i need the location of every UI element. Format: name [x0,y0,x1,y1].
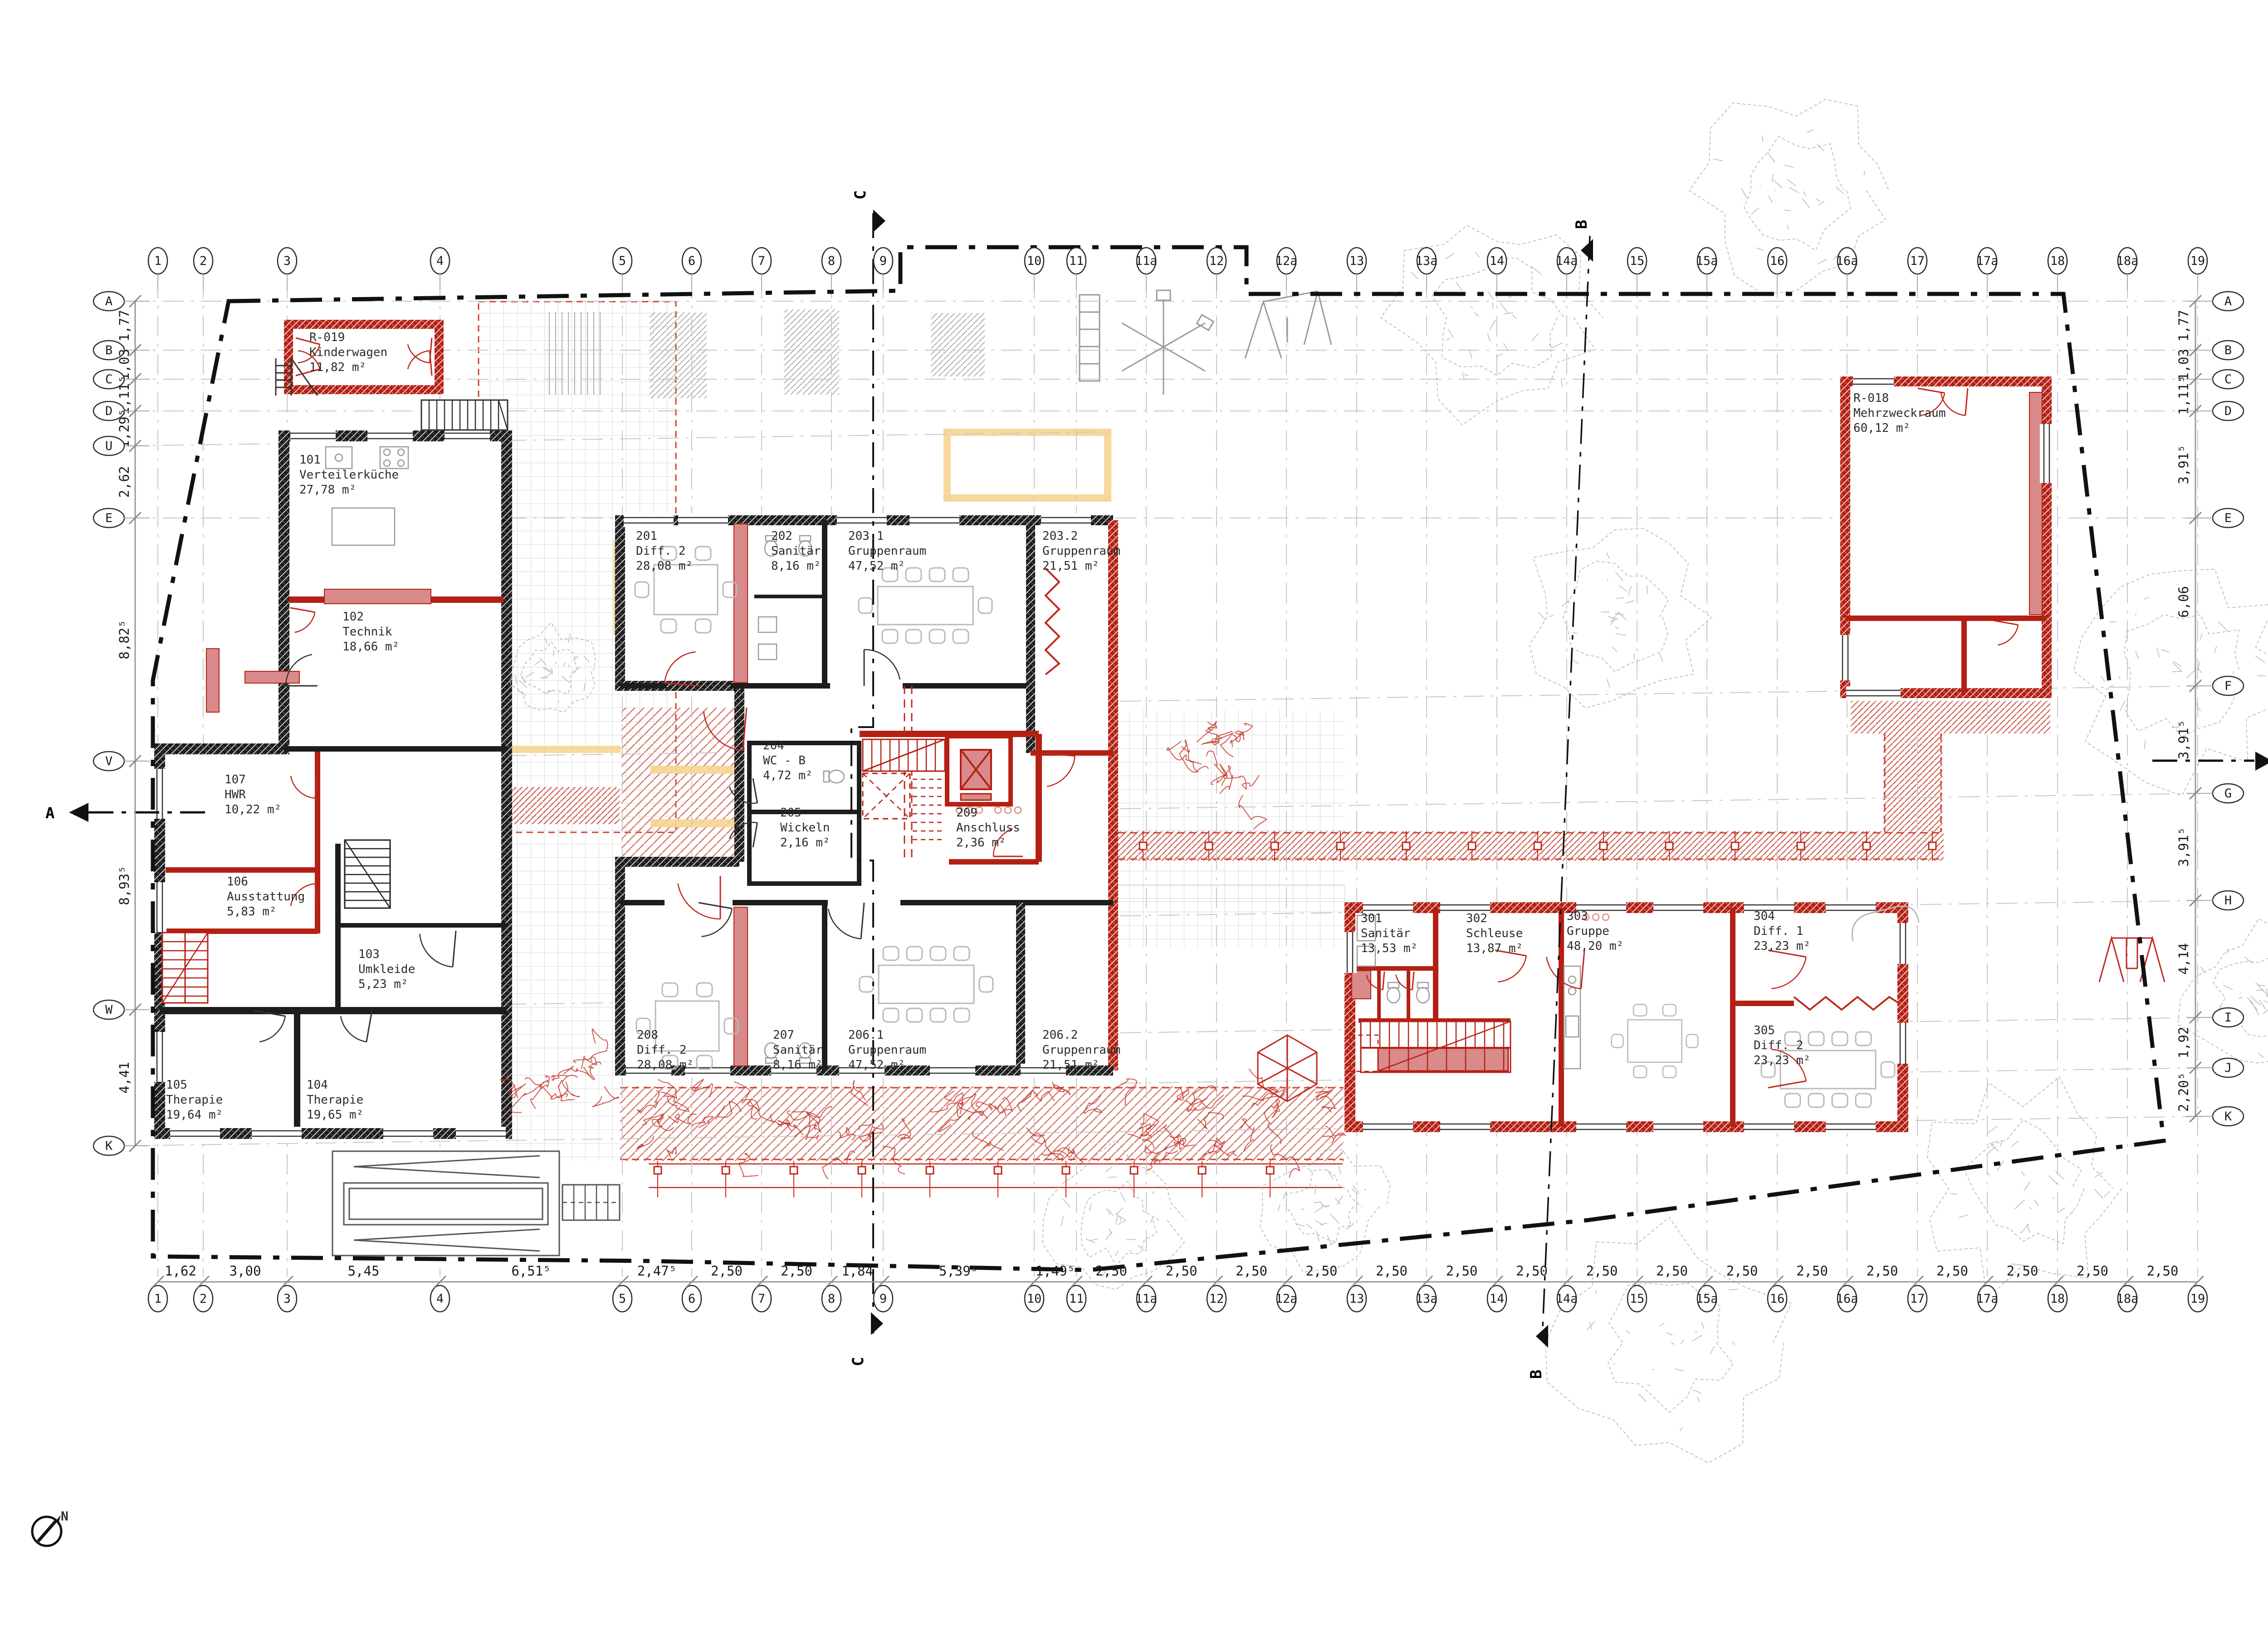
grid-bubble-top-13a: 13a [1416,248,1438,274]
window [1343,932,1357,973]
tree-1 [1689,99,1889,294]
grid-bubble-bottom-11: 11 [1067,1285,1086,1312]
svg-text:14: 14 [1490,1292,1505,1306]
grid-bubble-bottom-14a: 14a [1556,1285,1578,1312]
grid-bubble-bottom-13a: 13a [1416,1285,1438,1312]
grid-bubble-right-H: H [2213,891,2244,910]
paved-court-center [1118,710,1345,948]
stair-ramp-side [562,1185,620,1220]
grid-bubble-right-A: A [2213,292,2244,311]
svg-text:G: G [2224,787,2232,801]
grid-bubble-bottom-3: 3 [278,1285,297,1312]
dim-right-8: 1,92 [2176,1027,2191,1059]
grid-bubble-top-15a: 15a [1696,248,1718,274]
svg-text:19: 19 [2190,1292,2205,1306]
svg-text:11: 11 [1069,254,1084,268]
dim-bottom-12: 2,50 [1236,1263,1267,1279]
section-label-c: C [849,1357,867,1366]
svg-text:2: 2 [200,1292,207,1306]
grid-bubble-top-16a: 16a [1836,248,1858,274]
dim-bottom-4: 2,47⁵ [637,1263,677,1279]
svg-text:I: I [2224,1011,2232,1025]
svg-text:15a: 15a [1696,254,1718,268]
svg-text:D: D [105,404,112,418]
grid-bubble-bottom-11a: 11a [1135,1285,1158,1312]
grid-bubble-top-13: 13 [1347,248,1366,274]
grid-bubble-left-K: K [93,1136,124,1155]
section-label-a: A [45,804,54,822]
window [367,429,413,443]
heating-strip [943,494,1111,502]
building-west-interior [160,436,507,1134]
grid-bubble-left-E: E [93,508,124,528]
grid-bubble-top-18: 18 [2048,248,2067,274]
grid-bubble-left-U: U [93,436,124,455]
north-arrow-icon: N [32,1509,68,1546]
grid-bubble-bottom-4: 4 [430,1285,450,1312]
heating-strip [943,429,951,501]
window [252,1127,302,1140]
terrace-south [620,1086,1344,1161]
window [1653,901,1703,914]
dim-bottom-17: 2,50 [1586,1263,1618,1279]
svg-text:13a: 13a [1416,1292,1438,1306]
grid-bubble-top-4: 4 [430,248,450,274]
new-wall-pink [324,589,431,604]
stair-east [1350,1021,1510,1072]
svg-text:K: K [2224,1109,2232,1124]
new-wall-pink [206,649,219,712]
window [1744,1120,1794,1134]
svg-text:18: 18 [2050,254,2065,268]
dim-left-5: 8,82⁵ [117,620,132,659]
dim-bottom-11: 2,50 [1166,1263,1198,1279]
svg-text:J: J [2224,1061,2232,1075]
planting-bed [650,312,707,398]
grid-bubble-right-G: G [2213,784,2244,803]
swing-icon [2099,938,2165,982]
section-marker-a-right: A [2255,752,2268,772]
section-label-b: B [1527,1370,1545,1379]
dim-right-2: 1,11⁵ [2176,375,2191,415]
svg-text:5: 5 [619,1292,626,1306]
window [2040,424,2053,483]
bridge-west [508,787,620,824]
window [456,1127,506,1140]
svg-text:16: 16 [1770,254,1785,268]
terrace-notch [621,708,735,857]
section-marker-b-bottom: B [1527,1325,1548,1379]
dim-bottom-14: 2,50 [1376,1263,1408,1279]
grid-bubble-top-15: 15 [1628,248,1647,274]
svg-text:12a: 12a [1276,1292,1298,1306]
svg-text:A: A [105,294,112,308]
window [837,513,887,527]
grid-bubble-right-F: F [2213,676,2244,695]
dim-bottom-10: 2,50 [1095,1263,1127,1279]
grid-bubble-bottom-16: 16 [1768,1285,1787,1312]
svg-text:3: 3 [283,1292,291,1306]
section-label-b: B [1573,220,1591,229]
grid-bubble-top-14: 14 [1487,248,1506,274]
grid-bubble-bottom-17a: 17a [1976,1285,1999,1312]
svg-text:C: C [2224,372,2232,386]
dim-bottom-16: 2,50 [1516,1263,1548,1279]
window [1041,513,1091,527]
svg-text:16a: 16a [1836,254,1858,268]
svg-text:14a: 14a [1556,1292,1578,1306]
dim-bottom-6: 2,50 [781,1263,812,1279]
svg-text:12a: 12a [1276,254,1298,268]
svg-text:H: H [2224,894,2232,908]
north-label: N [61,1509,68,1524]
walkway-connector [1883,733,1942,832]
stair-west-red [162,933,208,1003]
grid-bubble-top-6: 6 [682,248,701,274]
grid-bubble-top-16: 16 [1768,248,1787,274]
dim-bottom-13: 2,50 [1306,1263,1338,1279]
stair-entry-north [421,400,508,430]
svg-text:16a: 16a [1836,1292,1858,1306]
svg-text:4: 4 [436,1292,444,1306]
window [1846,686,1901,700]
dim-bottom-2: 5,45 [348,1263,380,1279]
window [1440,1120,1490,1134]
svg-text:15a: 15a [1696,1292,1718,1306]
grid-bubble-bottom-15: 15 [1628,1285,1647,1312]
dim-bottom-22: 2,50 [1936,1263,1968,1279]
tree-2 [1530,528,1712,708]
dim-right-4: 6,06 [2176,586,2191,618]
svg-text:14: 14 [1490,254,1505,268]
window [170,1127,220,1140]
grid-bubble-top-14a: 14a [1556,248,1578,274]
window [1896,923,1910,964]
paved-court-west [508,832,619,1161]
tree-7 [1260,1150,1390,1272]
dim-bottom-9: 1,49⁵ [1036,1263,1075,1279]
svg-text:13a: 13a [1416,254,1438,268]
svg-text:10: 10 [1027,254,1042,268]
svg-text:V: V [105,754,112,768]
grid-bubble-top-5: 5 [613,248,632,274]
svg-text:10: 10 [1027,1292,1042,1306]
new-wall-pink [734,907,748,1066]
svg-text:19: 19 [2190,254,2205,268]
svg-text:B: B [105,343,112,357]
svg-text:D: D [2224,404,2232,418]
grid-bubble-right-B: B [2213,341,2244,360]
svg-text:K: K [105,1139,113,1153]
planting-bed [549,312,602,395]
dim-right-0: 1,77 [2176,310,2191,342]
grid-bubble-bottom-17: 17 [1908,1285,1927,1312]
grid-bubble-top-19: 19 [2188,248,2207,274]
new-wall-pink [734,524,748,683]
grid-bubble-top-10: 10 [1025,248,1044,274]
svg-text:15: 15 [1630,254,1645,268]
section-label-c: C [851,191,870,200]
grid-bubble-top-2: 2 [194,248,213,274]
window [1838,635,1852,680]
walkway-north-east [1118,831,1944,861]
svg-text:9: 9 [880,254,887,268]
grid-bubble-bottom-18: 18 [2048,1285,2067,1312]
ramp [332,1151,559,1256]
svg-text:U: U [105,439,112,453]
grid-bubble-right-J: J [2213,1058,2244,1077]
dim-bottom-25: 2,50 [2147,1263,2179,1279]
window [1826,1120,1876,1134]
svg-text:15: 15 [1630,1292,1645,1306]
planting-bed [931,313,985,376]
dim-bottom-3: 6,51⁵ [511,1263,551,1279]
floor-plan-drawing: C C B B A A 111,62223,00335,45446,51⁵552… [0,0,2268,1642]
dim-bottom-7: 1,84 [841,1263,873,1279]
svg-text:11: 11 [1069,1292,1084,1306]
window [1826,901,1876,914]
grid-bubble-bottom-5: 5 [613,1285,632,1312]
svg-text:7: 7 [758,1292,765,1306]
svg-text:B: B [2224,343,2232,357]
svg-text:11a: 11a [1135,254,1158,268]
svg-text:6: 6 [688,254,695,268]
grid-bubble-bottom-19: 19 [2188,1285,2207,1312]
window [1653,1120,1703,1134]
grid-bubble-bottom-2: 2 [194,1285,213,1312]
svg-text:1: 1 [154,254,161,268]
dim-right-9: 2,20⁵ [2176,1072,2191,1112]
dim-bottom-20: 2,50 [1796,1263,1828,1279]
svg-text:9: 9 [880,1292,887,1306]
svg-text:18: 18 [2050,1292,2065,1306]
grid-bubble-bottom-1: 1 [148,1285,167,1312]
tree-4 [1545,1217,1791,1463]
svg-text:E: E [2224,511,2232,525]
svg-text:18a: 18a [2116,1292,2139,1306]
grid-bubble-bottom-12: 12 [1207,1285,1226,1312]
window [909,513,959,527]
window [290,429,336,443]
dim-bottom-1: 3,00 [230,1263,261,1279]
dim-left-0: 1,77 [117,310,132,342]
grid-bubble-bottom-9: 9 [874,1285,893,1312]
dim-bottom-19: 2,50 [1726,1263,1758,1279]
section-line-b [1542,236,1590,1338]
grid-bubble-right-C: C [2213,370,2244,389]
grid-bubble-bottom-8: 8 [822,1285,841,1312]
grid-bubble-top-11a: 11a [1135,248,1158,274]
svg-text:12: 12 [1209,254,1224,268]
dim-right-3: 3,91⁵ [2176,445,2191,484]
dim-left-6: 8,93⁵ [117,865,132,905]
grid-bubble-top-12: 12 [1207,248,1226,274]
dim-bottom-18: 2,50 [1656,1263,1688,1279]
svg-text:17a: 17a [1976,254,1999,268]
section-marker-a-left: A [45,803,88,822]
grid-bubble-top-11: 11 [1067,248,1086,274]
window [383,1127,433,1140]
svg-text:F: F [2224,679,2232,693]
grid-bubble-right-K: K [2213,1107,2244,1126]
grid-bubble-top-1: 1 [148,248,167,274]
svg-text:11a: 11a [1135,1292,1158,1306]
grid-bubble-top-7: 7 [752,248,771,274]
planting-bed [784,309,839,395]
dim-right-7: 4,14 [2176,943,2191,975]
dim-bottom-23: 2,50 [2007,1263,2038,1279]
dim-bottom-8: 5,39⁵ [939,1263,978,1279]
dim-bottom-21: 2,50 [1867,1263,1898,1279]
window [930,1064,975,1077]
svg-text:17a: 17a [1976,1292,1999,1306]
window [1363,1120,1413,1134]
svg-text:18a: 18a [2116,254,2139,268]
grid-bubble-bottom-16a: 16a [1836,1285,1858,1312]
grid-bubble-top-18a: 18a [2116,248,2139,274]
grid-bubble-right-I: I [2213,1008,2244,1027]
window [445,429,490,443]
grid-bubble-top-3: 3 [278,248,297,274]
elevator [947,736,1011,804]
window [1853,375,1894,388]
svg-text:7: 7 [758,254,765,268]
svg-text:A: A [2224,294,2232,308]
dim-bottom-0: 1,62 [165,1263,196,1279]
svg-text:1: 1 [154,1292,161,1306]
svg-text:8: 8 [828,254,835,268]
dim-left-4: 2,62 [117,466,132,498]
grid-bubble-left-A: A [93,292,124,311]
window [1576,1120,1626,1134]
heating-strip [1104,429,1111,501]
svg-text:16: 16 [1770,1292,1785,1306]
dim-right-6: 3,91⁵ [2176,827,2191,866]
grid-bubble-top-17: 17 [1908,248,1927,274]
svg-text:17: 17 [1910,254,1925,268]
grid-bubble-top-8: 8 [822,248,841,274]
grid-bubble-top-12a: 12a [1276,248,1298,274]
new-wall-pink [1352,971,1371,999]
svg-text:2: 2 [200,254,207,268]
floor-plan-canvas: C C B B A A 111,62223,00335,45446,51⁵552… [0,0,2268,1642]
grid-bubble-top-17a: 17a [1976,248,1999,274]
svg-text:14a: 14a [1556,254,1578,268]
svg-text:E: E [105,511,112,525]
dim-left-7: 4,41 [117,1062,132,1094]
grid-bubble-bottom-7: 7 [752,1285,771,1312]
svg-text:13: 13 [1349,254,1364,268]
window [624,513,674,527]
new-wall-pink [245,671,299,683]
svg-text:17: 17 [1910,1292,1925,1306]
grid-bubble-bottom-13: 13 [1347,1285,1366,1312]
grid-bubble-bottom-12a: 12a [1276,1285,1298,1312]
svg-text:8: 8 [828,1292,835,1306]
svg-text:W: W [105,1003,113,1017]
grid-bubble-top-9: 9 [874,248,893,274]
svg-text:4: 4 [436,254,444,268]
dim-bottom-24: 2,50 [2077,1263,2108,1279]
dim-right-5: 3,91⁵ [2176,720,2191,759]
svg-text:13: 13 [1349,1292,1364,1306]
walkway-below-r018 [1851,701,2050,733]
grid-bubble-right-D: D [2213,401,2244,420]
svg-text:3: 3 [283,254,291,268]
grid-bubble-bottom-15a: 15a [1696,1285,1718,1312]
grid-bubble-bottom-14: 14 [1487,1285,1506,1312]
section-marker-c-top: C [851,191,885,232]
dim-bottom-5: 2,50 [711,1263,743,1279]
grid-bubble-bottom-10: 10 [1025,1285,1044,1312]
svg-text:12: 12 [1209,1292,1224,1306]
grid-bubble-bottom-18a: 18a [2116,1285,2139,1312]
grid-bubble-right-E: E [2213,508,2244,528]
grid-bubble-left-V: V [93,752,124,771]
grid-bubble-bottom-6: 6 [682,1285,701,1312]
window [1896,1023,1910,1064]
grid-bubble-left-W: W [93,1000,124,1019]
dim-bottom-15: 2,50 [1446,1263,1478,1279]
svg-text:5: 5 [619,254,626,268]
stair-west-black [345,840,390,908]
window [678,513,728,527]
section-marker-c-bottom: C [849,1312,883,1366]
svg-text:6: 6 [688,1292,695,1306]
svg-text:C: C [105,372,112,386]
